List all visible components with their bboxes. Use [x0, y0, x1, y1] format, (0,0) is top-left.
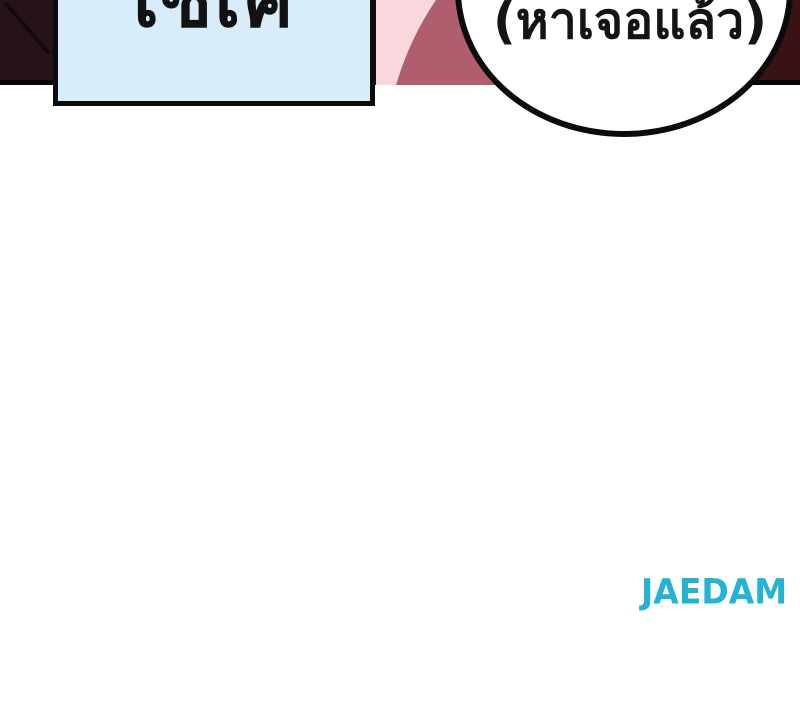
caption-text: เซเค [53, 0, 375, 38]
publisher-logo: JAEDAM [641, 571, 781, 612]
streak-line [6, 4, 48, 52]
speech-bubble-text: (หาเจอแล้ว) [468, 0, 792, 49]
